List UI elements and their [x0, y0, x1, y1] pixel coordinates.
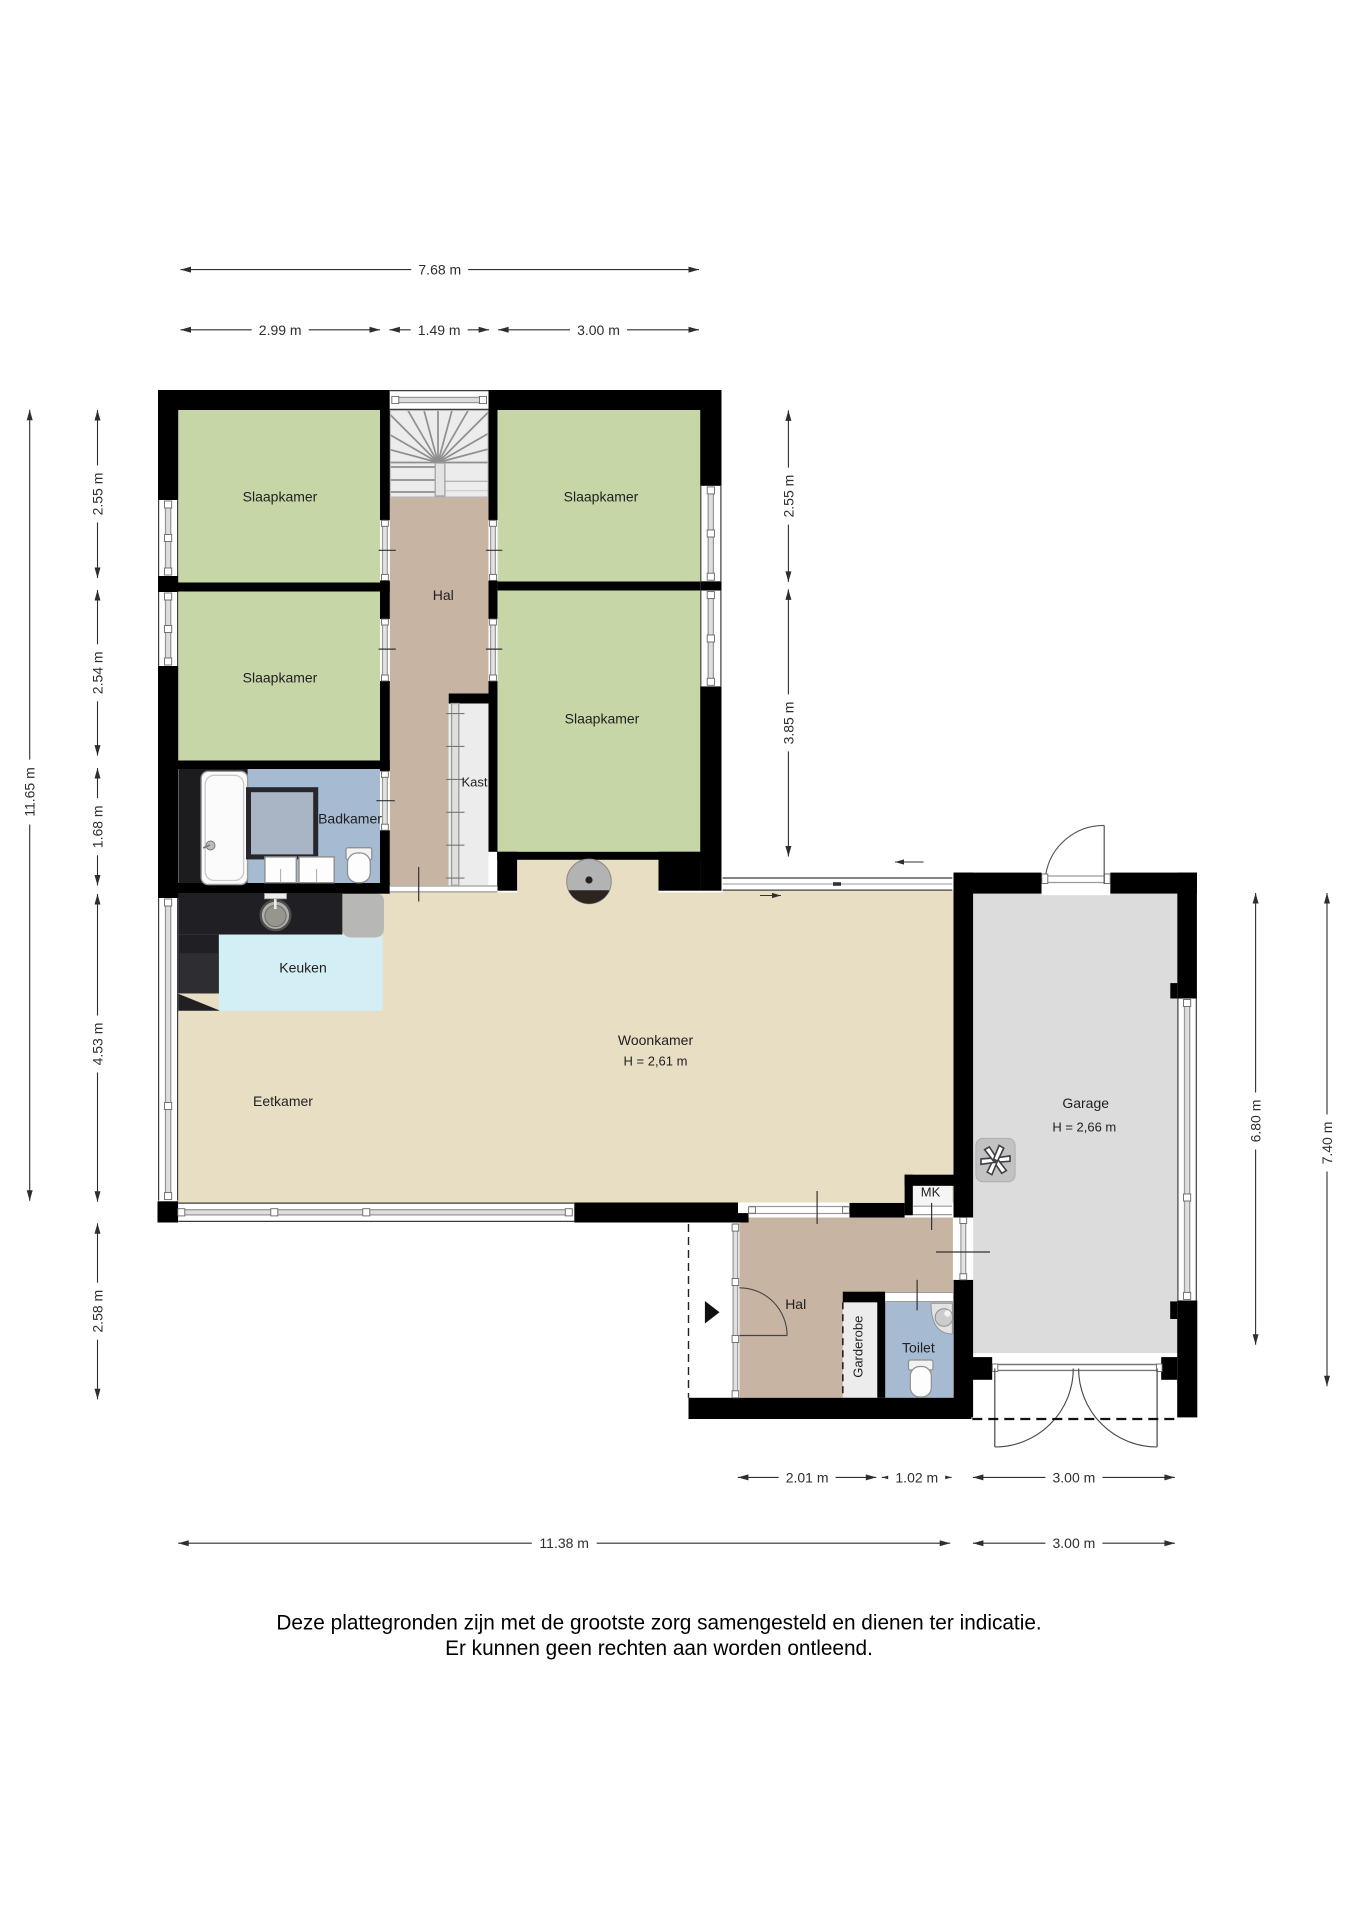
svg-text:4.53 m: 4.53 m	[90, 1023, 106, 1066]
svg-text:MK: MK	[921, 1185, 941, 1200]
svg-text:Deze plattegronden zijn met de: Deze plattegronden zijn met de grootste …	[276, 1612, 1041, 1635]
svg-text:Badkamer: Badkamer	[318, 811, 382, 827]
svg-text:Slaapkamer: Slaapkamer	[243, 489, 318, 505]
svg-text:2.01 m: 2.01 m	[786, 1469, 829, 1485]
svg-text:Hal: Hal	[785, 1296, 806, 1312]
svg-text:11.65 m: 11.65 m	[22, 767, 38, 817]
svg-text:3.00 m: 3.00 m	[1052, 1469, 1095, 1485]
svg-text:1.49 m: 1.49 m	[418, 322, 461, 338]
svg-text:7.68 m: 7.68 m	[418, 262, 461, 278]
svg-text:2.99 m: 2.99 m	[259, 322, 302, 338]
svg-text:Garage: Garage	[1062, 1095, 1109, 1111]
svg-text:11.38 m: 11.38 m	[539, 1535, 589, 1551]
svg-text:Slaapkamer: Slaapkamer	[565, 711, 640, 727]
svg-text:H = 2,66 m: H = 2,66 m	[1052, 1120, 1116, 1135]
svg-text:Kast: Kast	[461, 775, 487, 790]
svg-text:6.80 m: 6.80 m	[1248, 1100, 1264, 1143]
svg-text:Woonkamer: Woonkamer	[618, 1032, 694, 1048]
svg-text:Er kunnen geen rechten aan wor: Er kunnen geen rechten aan worden ontlee…	[445, 1637, 873, 1660]
svg-text:Slaapkamer: Slaapkamer	[243, 670, 318, 686]
svg-text:3.00 m: 3.00 m	[1052, 1535, 1095, 1551]
svg-text:2.55 m: 2.55 m	[90, 473, 106, 516]
svg-text:7.40 m: 7.40 m	[1319, 1122, 1335, 1165]
svg-text:Keuken: Keuken	[279, 960, 326, 976]
svg-text:2.54 m: 2.54 m	[90, 651, 106, 694]
svg-text:1.02 m: 1.02 m	[895, 1469, 938, 1485]
svg-text:Slaapkamer: Slaapkamer	[564, 489, 639, 505]
svg-text:Garderobe: Garderobe	[851, 1316, 866, 1378]
svg-text:2.55 m: 2.55 m	[780, 475, 796, 518]
svg-text:H = 2,61 m: H = 2,61 m	[624, 1054, 688, 1069]
svg-text:Hal: Hal	[433, 587, 454, 603]
svg-text:1.68 m: 1.68 m	[90, 805, 106, 848]
svg-text:Toilet: Toilet	[902, 1340, 935, 1356]
svg-text:2.58 m: 2.58 m	[90, 1290, 106, 1333]
svg-text:3.00 m: 3.00 m	[577, 322, 620, 338]
svg-text:3.85 m: 3.85 m	[780, 702, 796, 745]
svg-text:Eetkamer: Eetkamer	[253, 1093, 313, 1109]
